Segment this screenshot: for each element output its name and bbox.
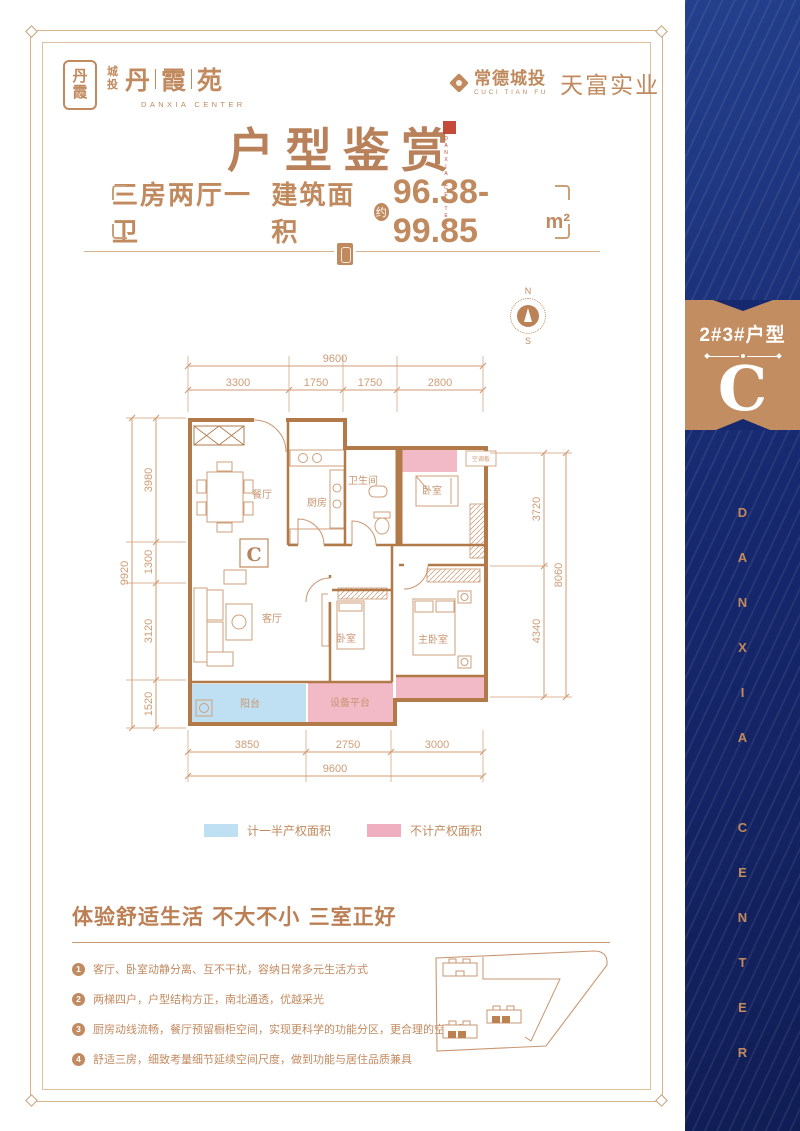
bracket-corner [112,185,127,200]
non-property-zone [396,677,486,699]
room-label-ac: 空调板 [472,455,490,463]
dim-label: 4340 [531,619,543,643]
room-label-bedroom-a: 卧室 [422,484,442,497]
room-label-bedroom-b: 卧室 [336,632,356,645]
dim-label: 3000 [425,739,449,751]
dim-label: 9600 [323,763,347,775]
compass-north-label: N [525,286,532,296]
dim-label: 1520 [143,692,155,716]
features-rule [72,942,610,943]
dim-label: 1300 [143,550,155,574]
page-title-wrap: 户型鉴赏 [0,112,686,181]
diamond-icon [704,353,710,359]
features-heading: 体验舒适生活 不大不小 三室正好 [72,901,610,931]
compass-needle-icon [517,305,539,327]
dim-label: 9920 [119,561,131,585]
compass-ring-icon [510,298,546,334]
dim-label: 2750 [336,739,360,751]
site-plan [425,945,620,1060]
bracket-corner [555,224,570,239]
building-2 [487,1006,521,1023]
legend: 计一半产权面积 不计产权面积 [0,822,686,839]
brand-seal-icon: 丹 霞 [63,60,97,110]
room-label-bathroom: 卫生间 [348,474,378,487]
dim-label: 1750 [358,377,382,389]
partner-name-en: CUCI TIAN FU [474,89,548,96]
compass: N S [504,286,552,346]
highlighted-unit [448,1031,456,1038]
brand-prefix: 城投 [107,66,118,92]
bracket-corner [112,224,127,239]
legend-item: 计一半产权面积 [204,822,331,839]
brand-name-en: DANXIA CENTER [141,100,246,109]
highlighted-unit [458,1031,466,1038]
room-label-living: 客厅 [262,612,282,625]
room-labels: 餐厅 厨房 卫生间 卧室 客厅 卧室 主卧室 阳台 设备平台 空调板 C [240,455,490,710]
stair-core [194,426,244,445]
dim-label: 8060 [553,563,565,587]
side-banner: 2#3#户型 C DANXIA CENTER [685,0,800,1131]
feature-item: 3 厨房动线流畅，餐厅预留橱柜空间，实现更科学的功能分区，更合理的空间利用 [72,1021,472,1037]
highlighted-unit [502,1016,510,1023]
legend-item: 不计产权面积 [367,822,482,839]
room-label-balcony: 阳台 [240,697,260,710]
features-list: 1 客厅、卧室动静分离、互不干扰，容纳日常多元生活方式 2 两梯四户，户型结构方… [72,961,472,1067]
legend-swatch-non-property [367,824,401,837]
bullet-number: 3 [72,1023,85,1036]
bullet-number: 1 [72,963,85,976]
feature-item: 1 客厅、卧室动静分离、互不干扰，容纳日常多元生活方式 [72,961,472,977]
site-road [483,957,560,1041]
dim-label: 3300 [226,377,250,389]
brand-name: 丹 霞 苑 [125,61,222,97]
room-label-kitchen: 厨房 [307,496,327,509]
partner-company: 天富实业 [560,66,660,100]
bullet-number: 2 [72,993,85,1006]
unit-letter: C [685,360,800,419]
building-3 [443,1021,477,1038]
dim-label: 9600 [323,353,347,365]
dim-label: 3850 [235,739,259,751]
highlighted-unit [492,1016,500,1023]
feature-item: 2 两梯四户，户型结构方正，南北通透，优越采光 [72,991,472,1007]
room-label-master: 主卧室 [418,633,448,646]
unit-title: 2#3#户型 [685,320,800,347]
gem-icon [449,73,469,93]
dim-label: 1750 [304,377,328,389]
vertical-brand-text: DANXIA CENTER [685,505,800,1095]
brand-logo: 丹 霞 城投 丹 霞 苑 DANXIA CENTER [63,60,246,110]
dim-label: 3120 [143,619,155,643]
legend-swatch-half-property [204,824,238,837]
page-title: 户型鉴赏 [227,112,459,181]
divider-ornament-icon [334,240,356,268]
room-label-dining: 餐厅 [252,488,272,501]
layout-label: 三房两厅一卫 [112,175,253,249]
area-value: 96.38-99.85 [393,173,546,251]
dim-label: 3720 [531,497,543,521]
unit-spec-line: 三房两厅一卫 建筑面积 约 96.38-99.85 m² [112,185,570,239]
red-seal-icon [443,121,456,134]
partner-name: 常德城投 [474,70,548,89]
dim-label: 3980 [143,468,155,492]
room-label-equipment: 设备平台 [330,696,370,709]
legend-label: 不计产权面积 [410,822,482,839]
partner-logo: 常德城投 CUCI TIAN FU 天富实业 [452,66,660,100]
area-label: 建筑面积 [271,175,365,249]
bullet-number: 4 [72,1053,85,1066]
bracket-corner [555,185,570,200]
feature-text: 两梯四户，户型结构方正，南北通透，优越采光 [93,991,324,1007]
diamond-icon [776,353,782,359]
feature-text: 客厅、卧室动静分离、互不干扰，容纳日常多元生活方式 [93,961,368,977]
legend-label: 计一半产权面积 [247,822,331,839]
unit-mark: C [246,544,261,566]
feature-text: 舒适三房，细致考量细节延续空间尺度，做到功能与居住品质兼具 [93,1051,412,1067]
dim-label: 2800 [428,377,452,389]
floorplan: 9600 3300 1750 1750 2800 9920 3980 1300 … [115,345,575,790]
feature-text: 厨房动线流畅，餐厅预留橱柜空间，实现更科学的功能分区，更合理的空间利用 [93,1021,478,1037]
feature-item: 4 舒适三房，细致考量细节延续空间尺度，做到功能与居住品质兼具 [72,1051,472,1067]
approx-badge: 约 [374,203,389,221]
building-1 [443,959,477,976]
non-property-zone [400,450,457,472]
wardrobes [338,504,486,599]
unit-badge-panel: 2#3#户型 C [685,300,800,430]
